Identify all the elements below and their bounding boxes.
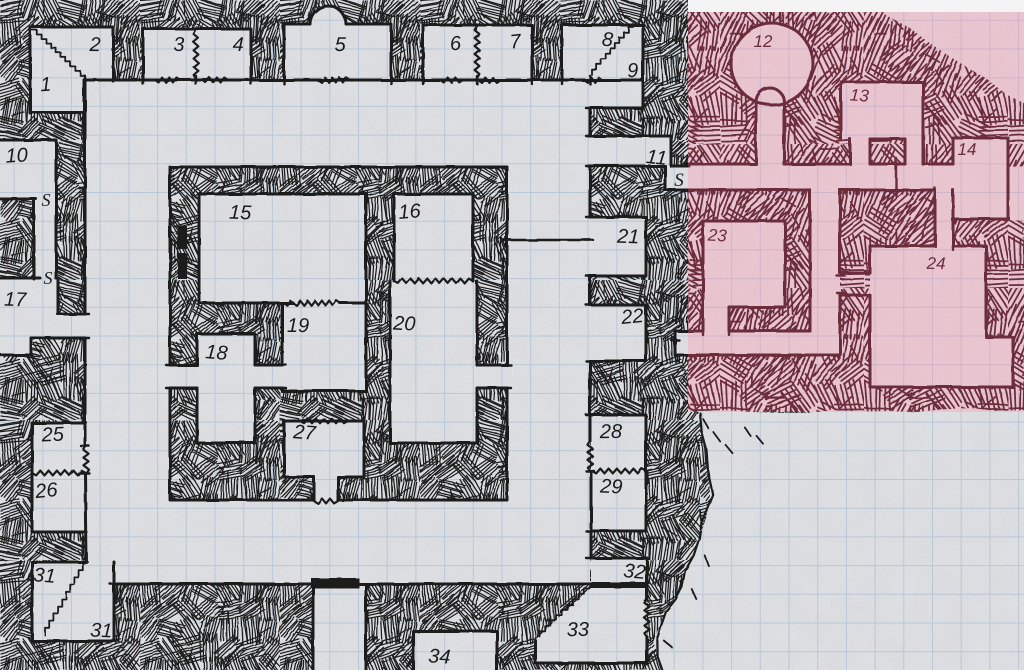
svg-text:33: 33 [567,619,590,641]
svg-text:26: 26 [33,479,59,503]
svg-text:11: 11 [645,146,668,170]
svg-text:22: 22 [619,305,644,329]
svg-text:29: 29 [599,475,623,498]
svg-text:17: 17 [4,289,28,312]
svg-text:S: S [42,190,51,210]
svg-text:15: 15 [229,202,253,225]
svg-text:34: 34 [428,645,452,668]
svg-text:2: 2 [88,34,100,56]
svg-text:9: 9 [627,60,639,83]
svg-text:3: 3 [173,34,185,56]
svg-text:20: 20 [392,312,416,335]
svg-text:S: S [44,268,53,288]
svg-text:31: 31 [33,564,57,588]
svg-text:16: 16 [398,200,423,224]
svg-text:10: 10 [5,144,28,167]
svg-text:5: 5 [334,34,347,56]
svg-text:27: 27 [292,421,318,445]
svg-text:S: S [674,170,684,191]
svg-text:1: 1 [40,74,52,97]
svg-text:28: 28 [599,421,622,443]
svg-text:32: 32 [622,560,646,584]
svg-text:31: 31 [90,620,113,643]
svg-text:18: 18 [205,341,229,365]
svg-text:4: 4 [232,34,244,56]
svg-text:25: 25 [40,424,65,447]
svg-text:21: 21 [616,226,640,249]
svg-text:8: 8 [601,29,614,52]
svg-text:19: 19 [287,315,309,337]
